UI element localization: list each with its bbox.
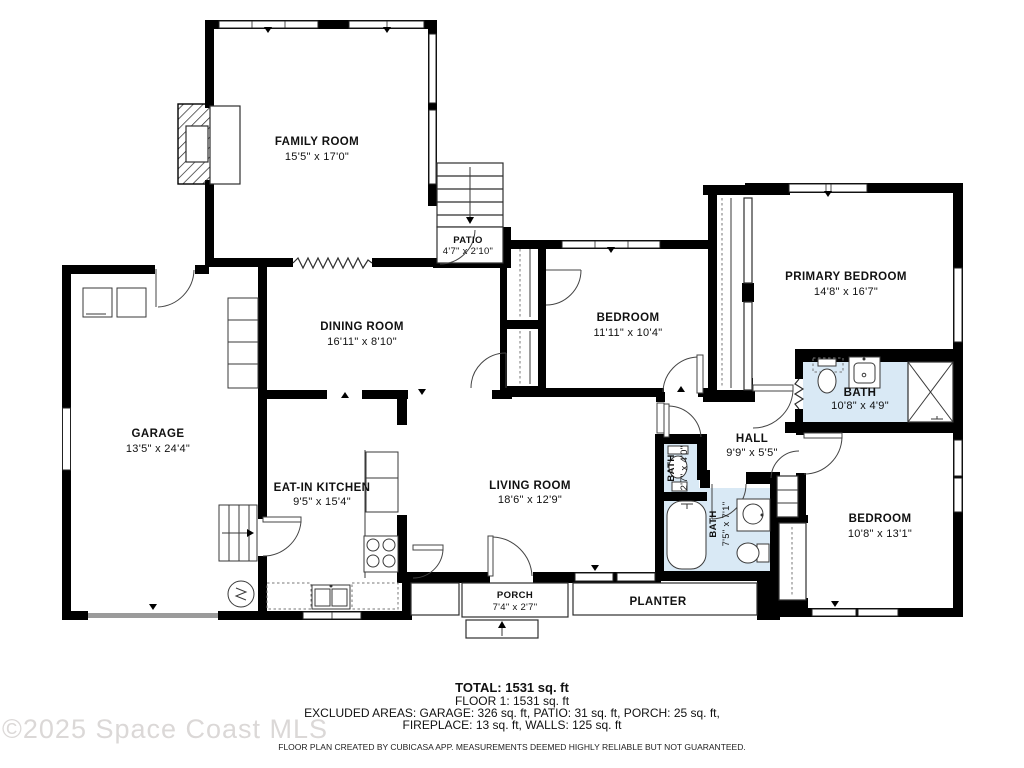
patio-dims: 4'7" x 2'10" [443,246,493,257]
primary-bedroom-label: PRIMARY BEDROOM [785,271,907,283]
dryer-icon [117,288,146,317]
hall-bath-label: BATH [708,510,719,537]
dining-room-dims: 16'11" x 8'10" [327,336,397,348]
garage-steps-icon [219,505,257,561]
window-icon [349,21,424,28]
window-icon [63,408,71,470]
water-closet-dims: 2'7" x 4'0" [679,446,690,491]
bathtub-icon [667,501,706,569]
primary-bath-label: BATH [844,387,877,399]
living-room-label: LIVING ROOM [489,480,571,492]
bedroom-middle-label: BEDROOM [597,312,660,324]
stove-icon [364,536,398,572]
counter-dashed [267,583,311,609]
window-icon [954,268,962,342]
door-icon [663,355,703,393]
garage-dims: 13'5" x 24'4" [126,443,190,455]
window-icon [812,609,898,616]
door-icon [488,536,532,576]
shower-icon [908,362,953,422]
bedroom-closet [779,523,806,600]
sink-icon [737,499,770,531]
family-room-label: FAMILY ROOM [275,136,359,148]
bedroom-bottom-dims: 10'8" x 13'1" [848,528,912,540]
door-icon [753,385,793,428]
total-area: TOTAL: 1531 sq. ft [0,682,1024,695]
shelves-icon [228,298,258,388]
dining-room-label: DINING ROOM [320,321,404,333]
floor-plan-drawing: FAMILY ROOM 15'5" x 17'0" PATIO 4'7" x 2… [0,0,1024,768]
door-icon [804,433,842,474]
window-icon [303,612,361,619]
primary-bath-dims: 10'8" x 4'9" [831,400,889,412]
porch-label: PORCH [497,590,533,601]
door-icon [657,403,664,433]
counter-dashed [352,583,398,609]
door-icon [263,517,301,556]
door-icon [546,270,581,305]
exterior-features [411,583,757,638]
window-icon [954,440,962,512]
window-icon [562,241,660,248]
counter-cabinet [366,478,398,512]
door-icon [664,404,701,437]
floor-plan-page: FAMILY ROOM 15'5" x 17'0" PATIO 4'7" x 2… [0,0,1024,768]
door-icon [156,269,194,307]
toilet-icon [737,543,769,563]
primary-bedroom-dims: 14'8" x 16'7" [814,286,878,298]
patio-stairs-icon [437,163,503,227]
patio-label: PATIO [453,235,483,246]
hall-label: HALL [736,433,768,445]
window-icon [789,184,867,192]
toilet-icon [818,359,836,393]
planter-label: PLANTER [629,596,686,608]
garage-label: GARAGE [132,428,185,440]
stoop-area [411,583,459,615]
water-heater-icon [228,581,254,607]
accordion-door-icon [293,258,372,268]
sink-icon [849,357,880,388]
mls-watermark: ©2025 Space Coast MLS [2,714,328,745]
sliding-door-panel [744,302,752,390]
linen-closet [777,476,798,517]
hall-bath-dims: 7'5" x 7'1" [721,502,732,547]
garage-door-icon [88,611,218,620]
fireplace-icon [178,104,240,184]
window-icon [219,21,318,28]
kitchen-label: EAT-IN KITCHEN [274,482,371,494]
refrigerator-icon [366,452,398,478]
accordion-door-icon [795,379,803,409]
porch-dims: 7'4" x 2'7" [493,602,538,613]
washer-icon [83,288,112,317]
family-room-dims: 15'5" x 17'0" [285,151,349,163]
kitchen-fixtures [267,450,398,609]
bedroom-middle-dims: 11'11" x 10'4" [593,327,662,339]
water-closet-label: BATH [666,454,677,481]
floor-area: FLOOR 1: 1531 sq. ft [0,695,1024,707]
bedroom-bottom-label: BEDROOM [849,513,912,525]
hall-dims: 9'9" x 5'5" [726,447,777,459]
kitchen-dims: 9'5" x 15'4" [293,496,351,508]
sliding-door-panel [744,198,752,283]
porch-step-icon [466,620,538,638]
living-room-dims: 18'6" x 12'9" [498,494,562,506]
kitchen-sink-icon [312,585,350,610]
